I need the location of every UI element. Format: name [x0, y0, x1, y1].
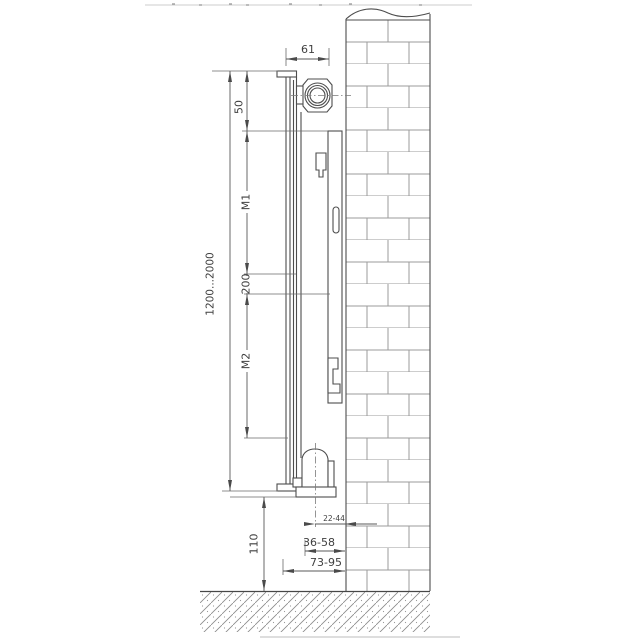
dim-label-73-95: 73-95 — [310, 556, 342, 569]
ground — [200, 592, 460, 638]
dim-label-height-range: 1200...2000 — [205, 252, 217, 315]
radiator-top-cap — [277, 71, 297, 77]
wall-break-line — [346, 9, 430, 19]
arrow-down — [245, 263, 249, 274]
arrow-down — [245, 427, 249, 438]
dim-label-m1: M1 — [240, 194, 253, 211]
dim-label-depth: 61 — [301, 43, 315, 56]
dim-label-36-58: 36-58 — [303, 536, 335, 549]
drawing-canvas: 61 1200...2000 50 M1 200 — [0, 0, 643, 643]
dim-label-22-44: 22-44 — [323, 514, 345, 523]
arrow-up — [228, 71, 232, 82]
arrow-right — [334, 569, 345, 573]
dim-label-m2: M2 — [240, 353, 253, 370]
arrow-left — [286, 57, 297, 61]
bracket-slot — [333, 207, 339, 233]
dim-73-95: 73-95 — [283, 556, 345, 575]
arrow-right — [334, 549, 345, 553]
dim-200: 200 — [240, 274, 254, 295]
top-ruler-line — [145, 4, 472, 5]
dim-m1: M1 — [240, 131, 254, 274]
arrow-left — [283, 569, 294, 573]
radiator-panel — [286, 77, 301, 484]
connection-plate — [328, 461, 334, 487]
top-valve — [291, 79, 351, 112]
arrow-up — [245, 294, 249, 305]
mounting-bracket — [316, 131, 342, 403]
dim-110: 110 — [248, 497, 267, 591]
bracket-top-hook — [316, 153, 326, 177]
arrow-up — [245, 131, 249, 142]
connection-dome — [302, 449, 328, 487]
dim-label-110: 110 — [248, 534, 261, 555]
connection-step — [293, 478, 302, 487]
dim-36-58: 36-58 — [303, 536, 345, 556]
dim-label-200: 200 — [240, 274, 253, 295]
arrow-down — [262, 580, 266, 591]
connection-foot — [296, 487, 336, 497]
arrow-left — [305, 549, 316, 553]
brick-wall — [346, 9, 430, 591]
arrow-right — [318, 57, 329, 61]
brick-pattern — [346, 20, 430, 591]
radiator-mounting-diagram: 61 1200...2000 50 M1 200 — [0, 0, 643, 643]
dim-depth-61: 61 — [286, 43, 329, 66]
arrow-down — [228, 480, 232, 491]
arrow-up — [262, 497, 266, 508]
dim-height-range: 1200...2000 — [205, 71, 233, 491]
dim-m2: M2 — [240, 294, 254, 438]
arrow-right — [304, 522, 315, 526]
arrow-up — [245, 71, 249, 82]
arrow-down — [245, 120, 249, 131]
ground-hatch — [200, 592, 430, 632]
dim-label-50: 50 — [233, 100, 246, 114]
dim-50: 50 — [233, 71, 250, 131]
